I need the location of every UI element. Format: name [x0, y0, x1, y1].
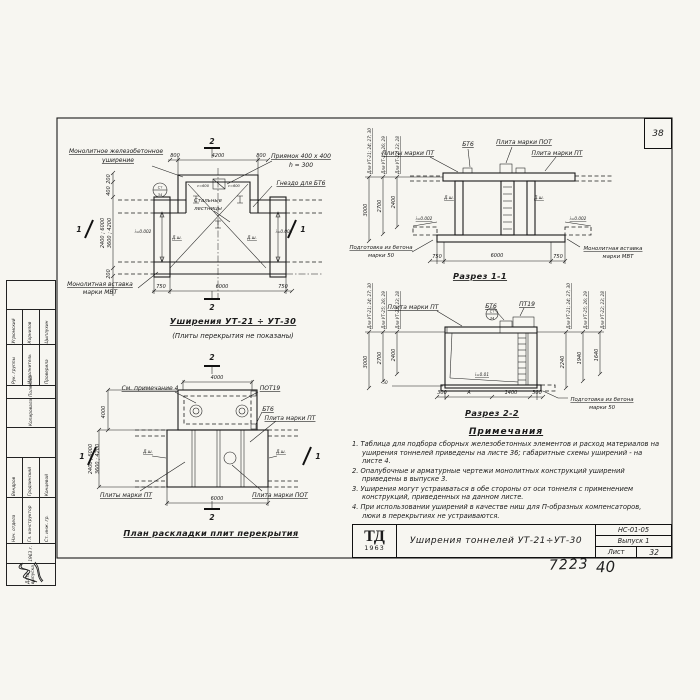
signature-scrawl-1 [7, 427, 55, 457]
plan-dim-750-left: 750 [156, 284, 166, 290]
handwritten-number-left: 7223 [549, 556, 589, 573]
detail-callout-st34: Ст 34 [153, 183, 167, 197]
plan-socket-label: Гнездо для БТ6 [277, 180, 326, 187]
role-executor: Исполнитель [23, 344, 38, 385]
s22-hl-label-3: Для УТ-22; 23; 28 [395, 291, 400, 330]
sp-top-dimension [181, 380, 254, 390]
sp-slabs-pt-label: Плиты марки ПТ [100, 492, 153, 499]
s11-bt6-label: БТ6 [462, 141, 474, 148]
plan-dim-6000: 6000 [216, 284, 229, 290]
plan-section-marks [85, 148, 296, 299]
s11-dim-750-right: 750 [553, 254, 563, 260]
title-block-right: НС-01-05 Выпуск 1 Лист 32 [595, 525, 671, 557]
s22-slope-label: i=0.01 [475, 372, 489, 377]
s11-insert-label-2: марки МВТ [603, 254, 635, 260]
s22-hl-2400: 2400 [391, 349, 397, 362]
sheet-drawing-canvas: Ст 34 [0, 0, 700, 700]
s11-height-label-1: Для УТ-21; 24; 27; 30 [367, 128, 372, 175]
s22-dim-a: А [466, 390, 471, 396]
sp-slab-pot-label: Плита марки ПОТ [252, 492, 309, 499]
name-group-leader: Угрюмский [7, 310, 22, 344]
sp-dim-6000: 6000 [211, 496, 224, 502]
plan-mark-bottom: 2 [209, 303, 214, 312]
detail-top-label: Ст [158, 186, 164, 190]
s22-pt19-label: ПТ19 [519, 301, 535, 308]
plan-top-dimension [168, 157, 270, 175]
plan-dim-left-400: 400 [106, 186, 112, 196]
sheet-label: Лист [596, 547, 637, 557]
s22-hr-label-3: Для УТ-22; 23; 28 [600, 291, 605, 330]
s22-prep-label-2: марки 50 [589, 405, 616, 411]
sp-joint-left: Д.ш. [142, 449, 153, 454]
notes-block: Примечания 1. Таблица для подбора сборны… [352, 427, 660, 521]
s22-detail-bottom: 34 [490, 317, 495, 321]
plan-dim-800-left: 800 [170, 153, 180, 159]
s22-hl-2700: 2700 [377, 352, 383, 365]
drawing-title: Уширения тоннелей УТ-21÷УТ-30 [397, 525, 595, 557]
plan-dim-left-span1: 2400 ; 6000 [100, 218, 106, 248]
organization-logo: ТД 1963 [353, 525, 397, 557]
plan-mark-left: 1 [76, 225, 81, 234]
plan-insert-label-2: марки МВТ [83, 289, 119, 296]
role-senior-engineer: Ст. инж. гр. [40, 497, 55, 543]
role-chief-designer: Гл. конструктор [23, 497, 38, 543]
plan-slope-right: i=0.002 [276, 229, 293, 234]
plan-widening-label-1: Монолитное железобетонное [69, 148, 163, 155]
sp-section-marks [88, 447, 311, 509]
sp-pot19-label: ПОТ19 [260, 385, 281, 392]
s22-title: Разрез 2-2 [465, 408, 519, 418]
drawing-sheet: Ст 34 [0, 0, 700, 700]
s22-dim-300-left: 300 [437, 390, 447, 396]
handwritten-number-right: 40 [596, 558, 616, 577]
s11-height-label-3: Для УТ-22; 23; 28 [395, 136, 400, 175]
plan-joint-left: Д.ш. [171, 235, 182, 240]
sp-mark-top: 2 [209, 353, 214, 362]
issue-label: Выпуск 1 [596, 536, 671, 547]
s22-bt6-label: БТ6 [485, 303, 497, 310]
signature-stamp-column: Дата выпуска 1963 г. Нач. отдела Вендров… [6, 280, 56, 586]
sp-title: План раскладки плит перекрытия [123, 528, 298, 538]
sp-see-note-label: См. примечание 4 [122, 385, 179, 392]
s22-hr-2240: 2240 [560, 356, 566, 369]
role-group-leader: Рук. группы [7, 344, 22, 385]
s22-detail-top: Ст [490, 310, 496, 314]
sp-slab-pt-label: Плита марки ПТ [265, 415, 317, 422]
notes-title: Примечания [352, 427, 660, 437]
sheet-row: Лист 32 [596, 547, 671, 557]
document-code: НС-01-05 [596, 525, 671, 536]
s11-prep-label-2: марки 50 [368, 253, 395, 259]
name-dept-head: Вендров [7, 458, 22, 497]
plan-insert-label-1: Монолитная вставка [67, 281, 133, 288]
name-senior-engineer: Концевой [40, 458, 55, 497]
plan-dim-800-right: 800 [256, 153, 266, 159]
stamp-copyist-cell: Копировала Полякова [7, 385, 55, 427]
s11-slope-right: i=0.002 [570, 216, 587, 221]
note-item-1: 1. Таблица для подбора сборных железобет… [352, 440, 660, 466]
sp-dim-span2: 3600 ; 4200 [95, 444, 101, 474]
s11-slab-pot-label: Плита марки ПОТ [496, 139, 553, 146]
note-item-3: 3. Уширения могут устраиваться в обе сто… [352, 485, 660, 502]
note-item-2: 2. Опалубочные и арматурные чертежи моно… [352, 467, 660, 484]
stamp-group-authors: Рук. группы Угрюмский Исполнитель Корнил… [7, 309, 55, 385]
s22-bottom-dimension [435, 391, 545, 400]
sp-dim-4000-top: 4000 [211, 375, 224, 381]
corner-number-value: 38 [652, 129, 663, 139]
plan-subtitle: (Плиты перекрытия не показаны) [172, 332, 293, 340]
s11-dim-750-left: 750 [432, 254, 442, 260]
note-item-4: 4. При использовании уширений в качестве… [352, 503, 660, 520]
s22-hl-label-2: Для УТ-25; 26; 29 [381, 291, 386, 330]
role-dept-head: Нач. отдела [7, 497, 22, 543]
plan-joint-right: Д.ш. [246, 235, 257, 240]
plan-ladders-label-2: лестницы [193, 206, 223, 212]
role-copyist: Копировала [7, 398, 55, 427]
name-executor: Корнилов [23, 310, 38, 344]
signature-scrawl-2 [7, 281, 55, 309]
logo-year: 1963 [364, 544, 385, 552]
title-block: ТД 1963 Уширения тоннелей УТ-21÷УТ-30 НС… [352, 524, 672, 558]
s11-joint-left: Д.ш. [443, 195, 454, 200]
s22-prep-label-1: Подготовка из бетона [570, 397, 633, 403]
sp-mark-bottom: 2 [209, 513, 214, 522]
s11-height-label-2: Для УТ-25; 26; 29 [381, 136, 386, 175]
sp-mark-left: 1 [79, 452, 84, 461]
detail-bottom-label: 34 [158, 193, 163, 197]
name-checker: Цыплухин [40, 310, 55, 344]
s22-hr-1940: 1940 [577, 352, 583, 365]
plan-slope-left: i=0.002 [135, 229, 152, 234]
sp-joint-right: Д.ш. [275, 449, 286, 454]
s22-dim-1400: 1400 [505, 390, 518, 396]
s11-insert-label-1: Монолитная вставка [584, 246, 643, 252]
s22-dim-300-right: 300 [532, 390, 542, 396]
s22-hr-label-1: Для УТ-21; 24; 27; 30 [566, 283, 571, 330]
name-chief-designer: Гродзинский [23, 458, 38, 497]
sp-bt6-label: БТ6 [262, 406, 274, 413]
plan-pit-label-2: h = 300 [289, 162, 313, 169]
stamp-group-management: Нач. отдела Вендров Гл. конструктор Грод… [7, 457, 55, 543]
s11-joint-right: Д.ш. [533, 195, 544, 200]
plan-title: Уширения УТ-21 ÷ УТ-30 [170, 316, 296, 326]
plan-dim-4200: 4200 [212, 153, 225, 159]
s11-height-2400: 2400 [391, 196, 397, 209]
s11-title: Разрез 1-1 [453, 271, 507, 281]
s11-slabs-pt-label: Плиты марки ПТ [382, 150, 435, 157]
sp-left-dimensions [97, 388, 178, 489]
plan-dim-750-right: 750 [278, 284, 288, 290]
role-checker: Проверила [40, 344, 55, 385]
plan-mark-top: 2 [209, 137, 214, 146]
sp-dim-4000-left: 4000 [101, 406, 107, 419]
plan-pit-note-left: с=600 [197, 184, 210, 188]
plan-pit-note-right: с=600 [228, 184, 241, 188]
s11-height-3000: 3000 [363, 204, 369, 217]
sheet-corner-number: 38 [644, 118, 672, 149]
sp-dim-span1: 2400 ; 6000 [88, 444, 94, 474]
plan-dim-left-200a: 200 [106, 174, 112, 184]
s22-hl-3000: 3000 [363, 356, 369, 369]
s22-offset-50: 50 [382, 380, 388, 385]
sheet-value: 32 [637, 547, 671, 557]
s11-dim-6000: 6000 [491, 253, 504, 259]
ladder-2-2 [518, 333, 526, 385]
s22-hr-1640: 1640 [594, 349, 600, 362]
s22-hl-label-1: Для УТ-21; 24; 27; 30 [367, 283, 372, 330]
s22-hr-label-2: Для УТ-25; 26; 29 [583, 291, 588, 330]
plan-view-drawing: Ст 34 [85, 148, 322, 300]
ladder-1-1 [503, 187, 512, 229]
s11-prep-label-1: Подготовка из бетона [349, 245, 412, 251]
plan-mark-right: 1 [300, 225, 305, 234]
plan-pit-label-1: Приямок 400 x 400 [271, 153, 331, 160]
plan-widening-label-2: уширение [101, 157, 134, 164]
sp-mark-right: 1 [315, 452, 320, 461]
s11-slab-pt-label: Плита марки ПТ [532, 150, 584, 157]
logo-letters: ТД [364, 530, 385, 544]
plan-dim-left-span2: 3600 ; 4200 [107, 218, 113, 248]
s11-height-2700: 2700 [377, 200, 383, 213]
plan-dim-left-200b: 200 [106, 269, 112, 279]
plan-ladders-label-1: Стальные [194, 198, 223, 204]
s11-slope-left: i=0.002 [416, 216, 433, 221]
